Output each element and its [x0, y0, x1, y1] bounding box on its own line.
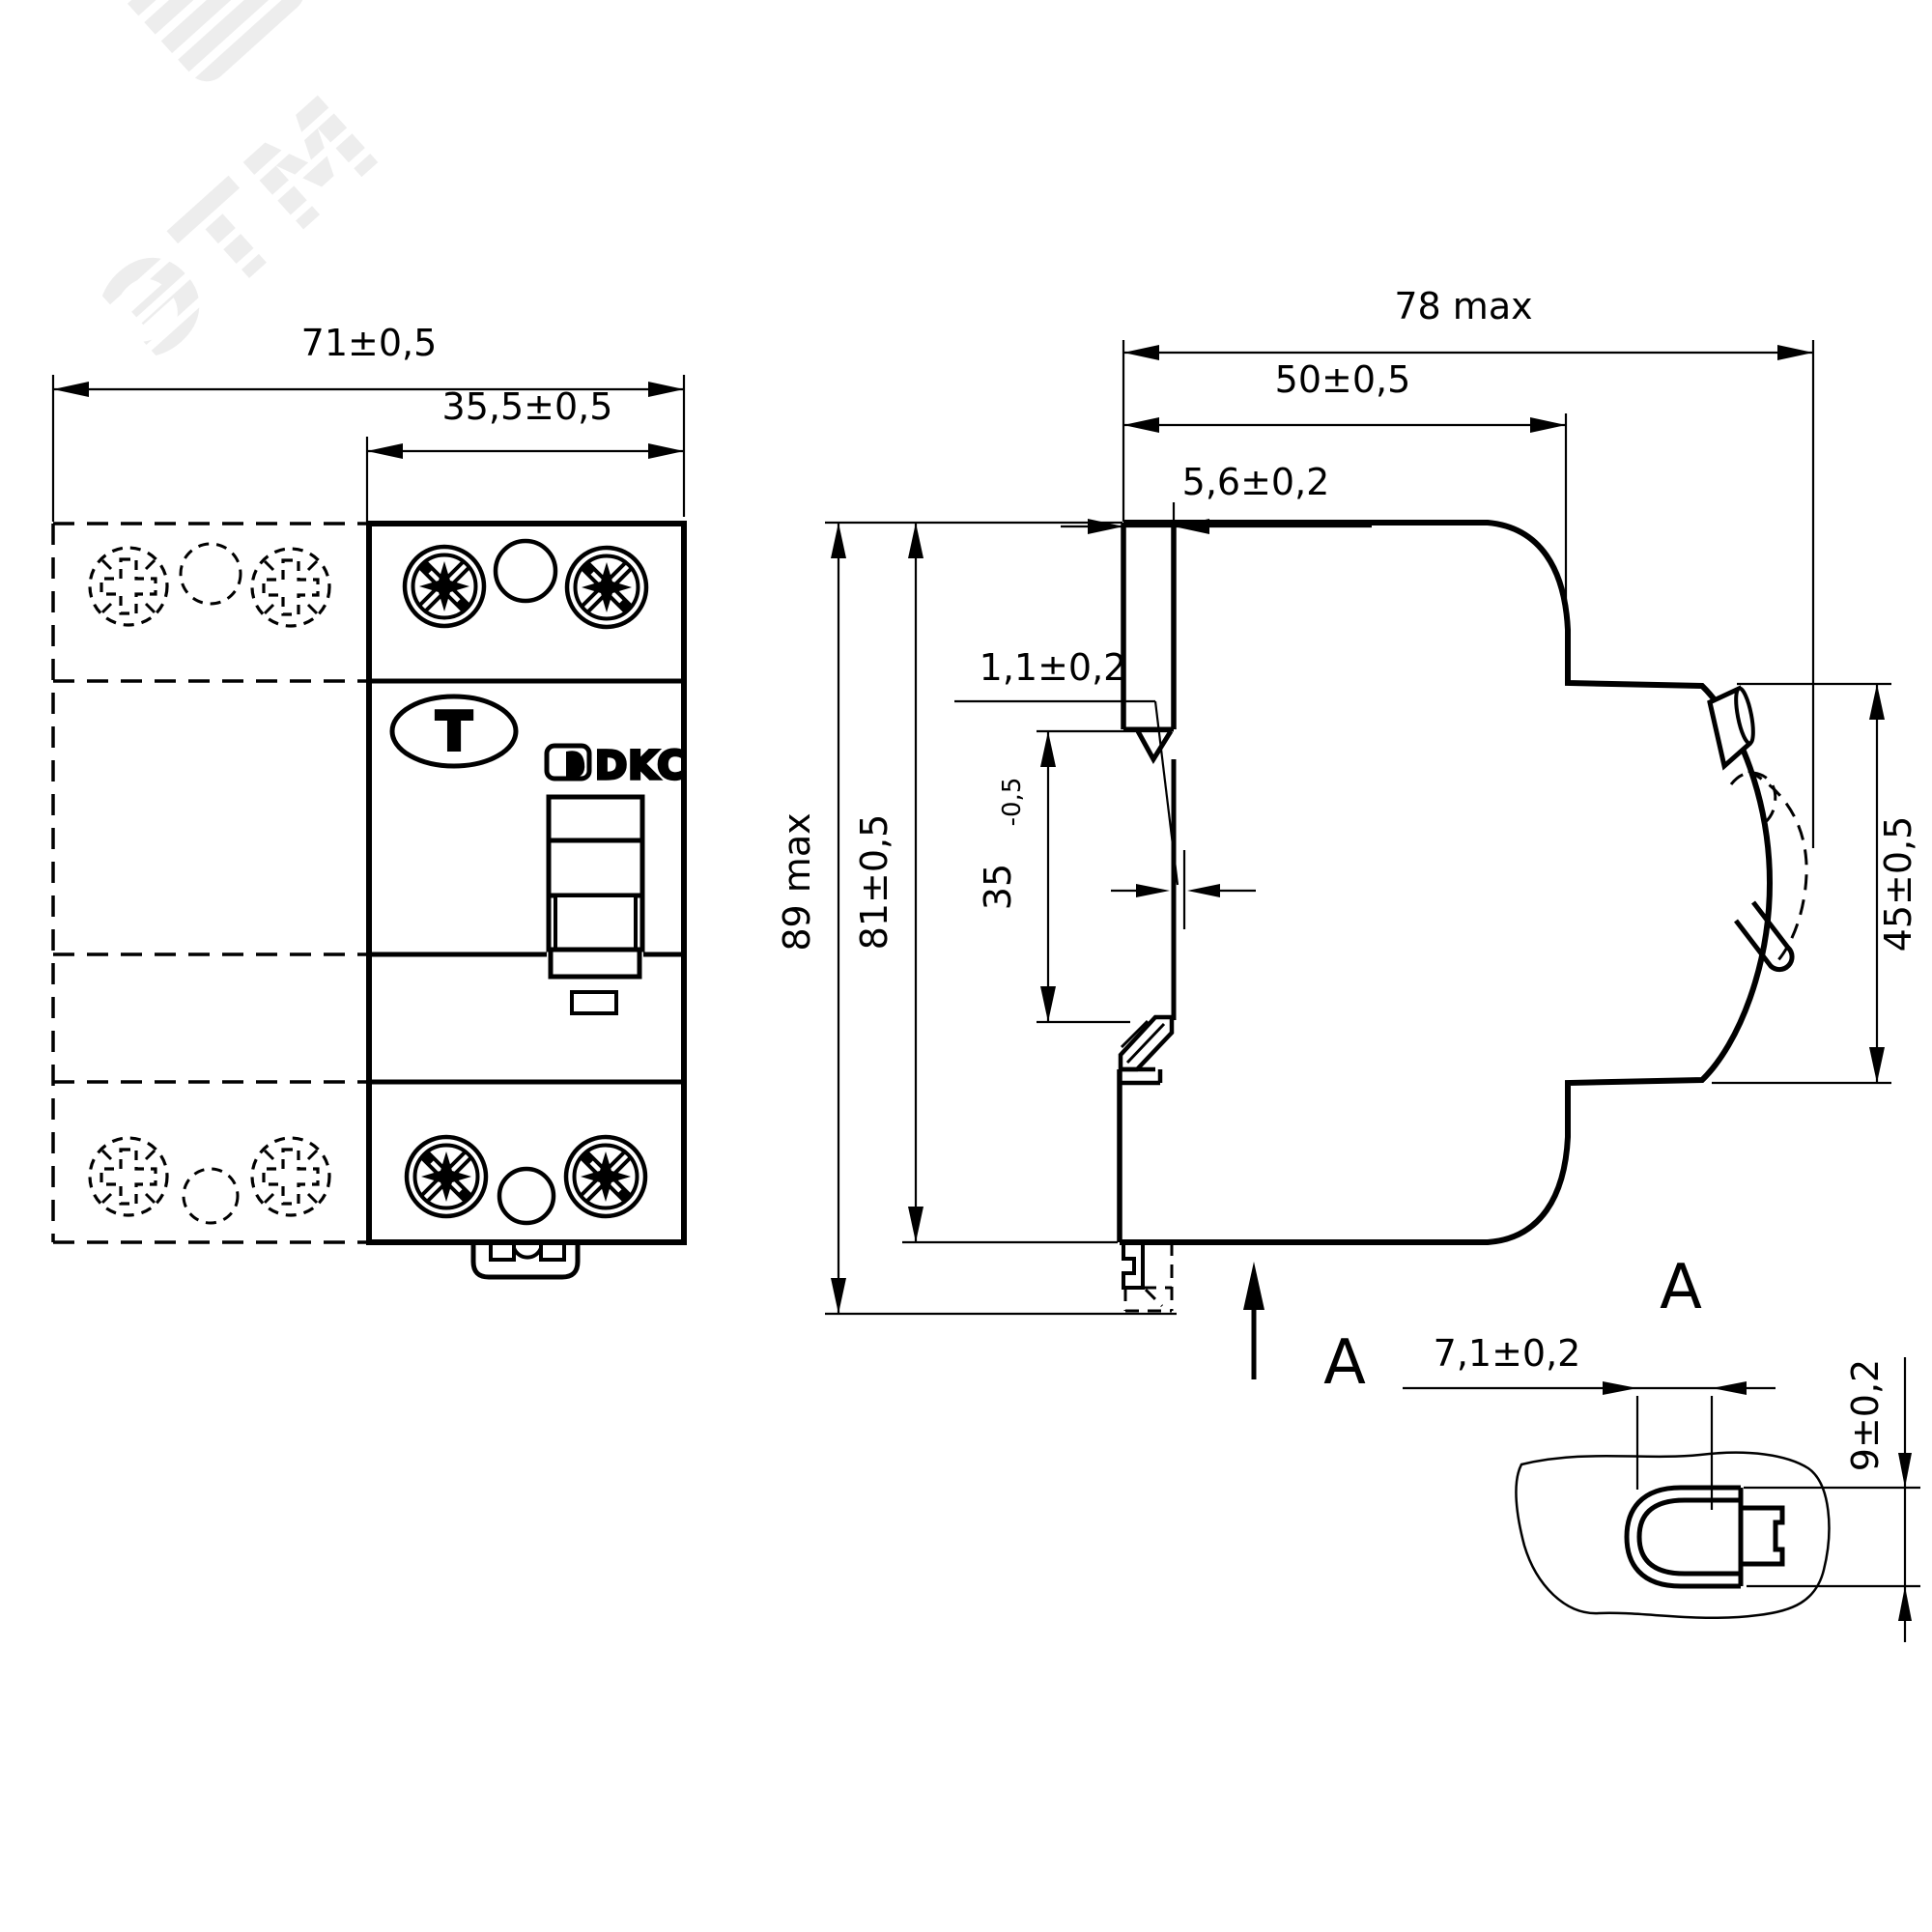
svg-text:9±0,2: 9±0,2 [1844, 1359, 1887, 1471]
svg-text:35: 35 [977, 864, 1019, 910]
technical-drawing-page: ЭТМ [0, 0, 1932, 1932]
din-clip-side [1123, 1242, 1172, 1311]
dim-front-module-width: 35,5±0,5 [367, 385, 684, 522]
svg-text:5,6±0,2: 5,6±0,2 [1182, 461, 1330, 503]
side-view: 78 max 50±0,5 5,6±0,2 1,1±0,2 [776, 285, 1919, 1399]
ghost-terminal-hole-icon [184, 1169, 238, 1223]
dim-clip-width: 7,1±0,2 [1403, 1332, 1776, 1510]
test-button-label: T [437, 701, 472, 762]
ghost-module-outline [53, 524, 369, 1242]
dim-rail-lip: 1,1±0,2 [954, 646, 1256, 897]
svg-text:50±0,5: 50±0,5 [1275, 358, 1411, 401]
dkc-logo-text: DKC [595, 744, 687, 788]
dim-recess-depth: 5,6±0,2 [1061, 461, 1372, 537]
din-clip-front [473, 1242, 578, 1277]
toggle-lever-up [1710, 687, 1756, 766]
detail-break-outline [1516, 1453, 1829, 1618]
ghost-screw-icon [90, 548, 167, 625]
dim-rail-height: 35 -0,5 [977, 731, 1172, 1022]
dim-height-max: 89 max [776, 523, 1177, 1314]
test-button: T [392, 696, 516, 766]
ghost-screw-icon [252, 1138, 329, 1215]
svg-text:78 max: 78 max [1394, 285, 1532, 327]
ghost-screw-icon [252, 549, 329, 626]
front-view: T DKC [53, 322, 687, 1277]
rail-clip-detail [1627, 1488, 1782, 1586]
svg-text:1,1±0,2: 1,1±0,2 [980, 646, 1127, 689]
svg-text:7,1±0,2: 7,1±0,2 [1434, 1332, 1581, 1375]
view-arrow-label: A [1323, 1327, 1366, 1399]
svg-text:45±0,5: 45±0,5 [1877, 816, 1919, 952]
detail-view-a: A 7,1±0,2 9±0,2 [1403, 1252, 1920, 1642]
ghost-screw-icon [90, 1138, 167, 1215]
ghost-terminal-hole-icon [181, 544, 241, 604]
side-body-outline [1120, 523, 1770, 1242]
svg-text:71±0,5: 71±0,5 [301, 322, 438, 364]
view-direction-arrow: A [1243, 1262, 1366, 1399]
dim-depth-max: 78 max [1123, 285, 1813, 848]
rail-recess [1123, 523, 1184, 1020]
svg-text:89 max: 89 max [776, 812, 818, 951]
dim-clip-height: 9±0,2 [1744, 1357, 1920, 1642]
indicator-window [572, 992, 616, 1013]
rail-notch [1138, 731, 1171, 759]
svg-text:81±0,5: 81±0,5 [853, 814, 895, 951]
svg-text:35,5±0,5: 35,5±0,5 [442, 385, 613, 428]
svg-text:-0,5: -0,5 [998, 778, 1027, 827]
dimensional-drawing: ЭТМ [0, 0, 1932, 1932]
detail-label: A [1660, 1252, 1702, 1323]
rail-clip-hook [1120, 1017, 1172, 1242]
